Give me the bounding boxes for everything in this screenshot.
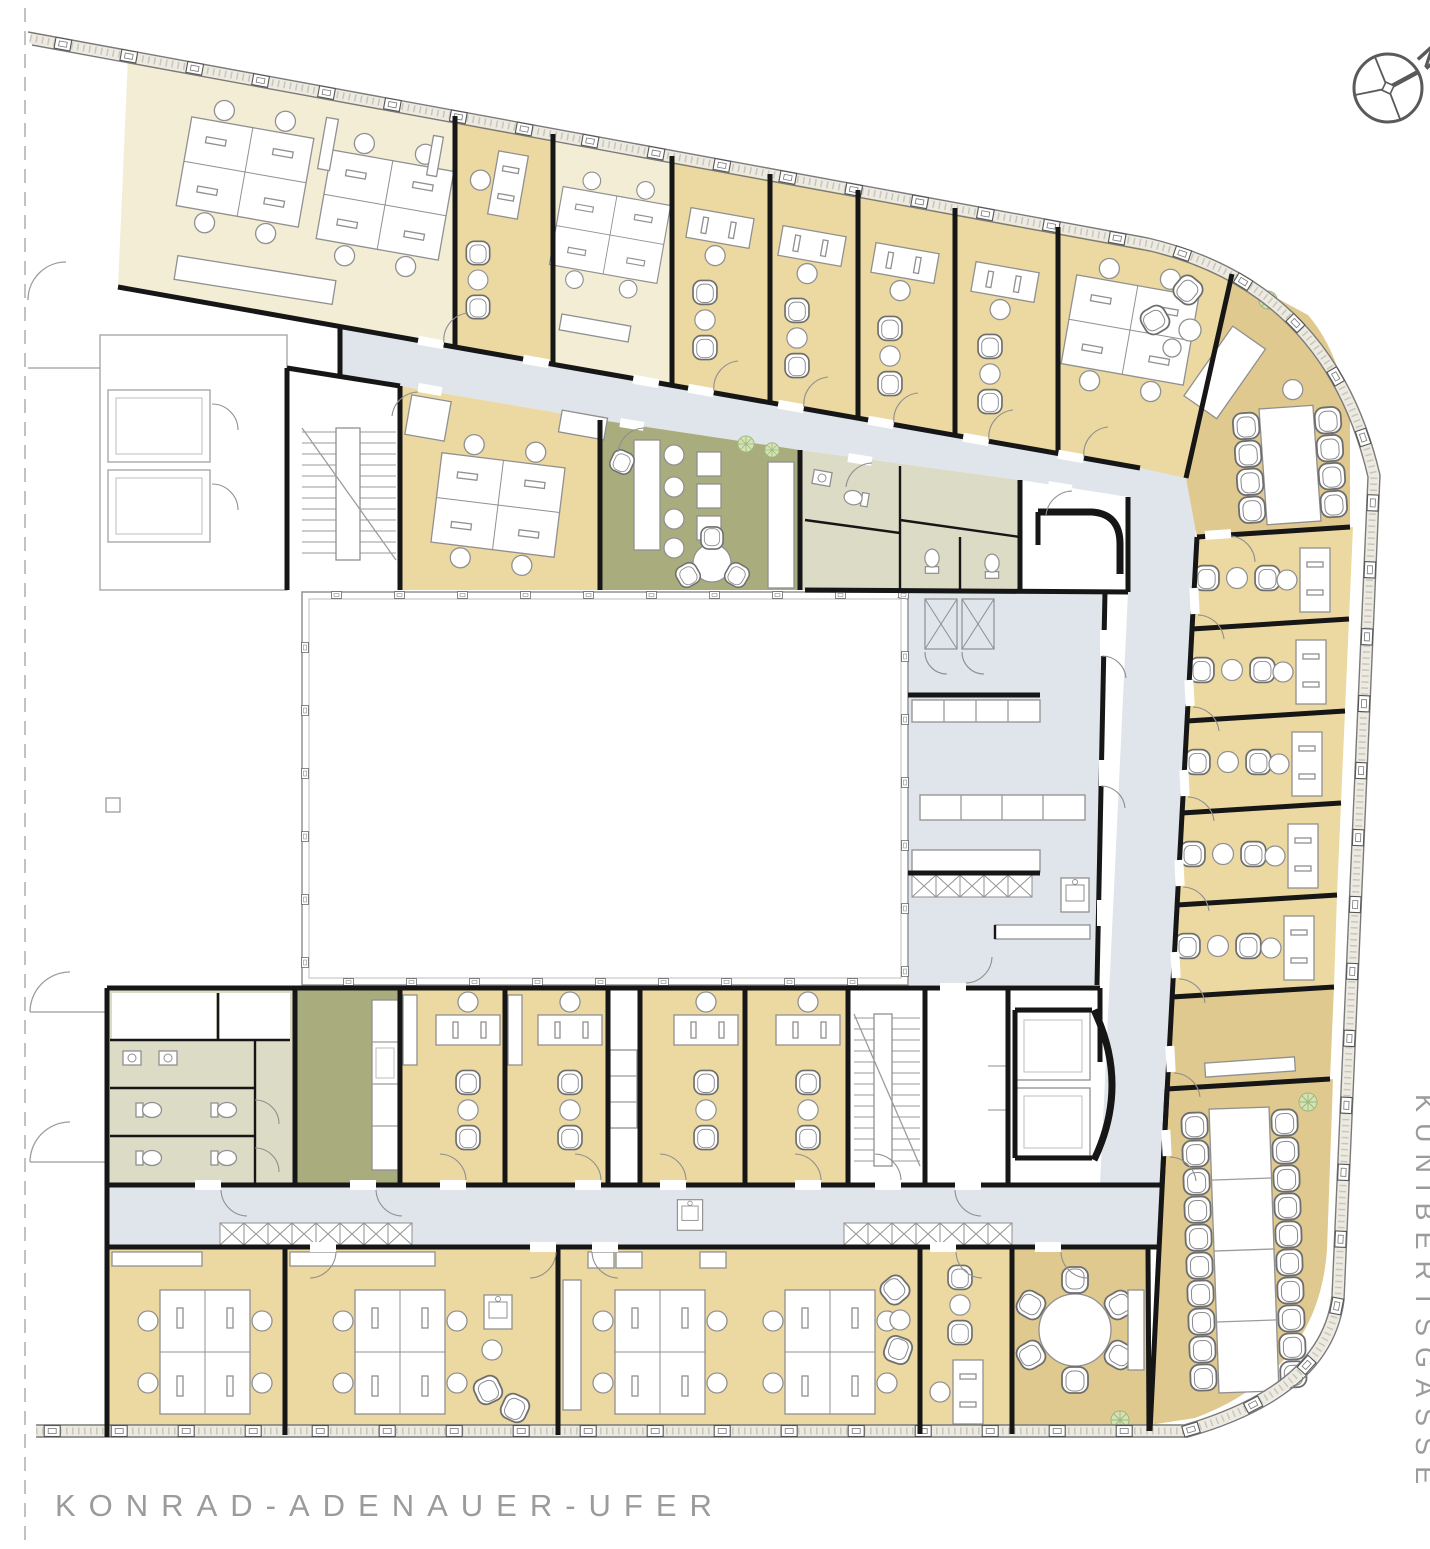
neighbor-wall xyxy=(30,972,107,1012)
facade-column xyxy=(332,592,342,599)
facade-column xyxy=(902,652,909,662)
facade-column xyxy=(302,958,309,968)
room-cell-office xyxy=(770,174,858,418)
facade-column xyxy=(186,61,204,75)
facade-column xyxy=(902,841,909,851)
facade-column xyxy=(584,592,594,599)
facade-column xyxy=(848,1426,864,1437)
facade-column xyxy=(902,904,909,914)
facade-column xyxy=(521,592,531,599)
facade-column xyxy=(1108,231,1126,245)
facade-column xyxy=(714,1426,730,1437)
facade-column xyxy=(1116,1426,1132,1437)
facade-column xyxy=(713,159,731,173)
facade-column xyxy=(596,979,606,986)
floor-plan: KONRAD-ADENAUER-UFER KUNIBERTSGASSE N xyxy=(0,0,1430,1549)
north-compass: N xyxy=(1354,41,1430,122)
facade-column xyxy=(1352,829,1364,845)
floor-plan-page: KONRAD-ADENAUER-UFER KUNIBERTSGASSE N xyxy=(0,0,1430,1549)
facade-column xyxy=(1341,1097,1353,1113)
street-label-right: KUNIBERTSGASSE xyxy=(1410,1094,1430,1495)
facade-column xyxy=(120,49,138,63)
facade-column xyxy=(781,1426,797,1437)
room-cell-office xyxy=(955,208,1058,453)
facade-column xyxy=(1346,963,1358,979)
facade-column xyxy=(710,592,720,599)
facade-column xyxy=(54,37,72,51)
facade-column xyxy=(302,643,309,653)
facade-column xyxy=(513,1426,529,1437)
facade-column xyxy=(44,1426,60,1437)
facade-column xyxy=(533,979,543,986)
street-label-bottom: KONRAD-ADENAUER-UFER xyxy=(55,1488,725,1523)
facade-column xyxy=(977,207,995,221)
room-cell-office xyxy=(858,190,955,435)
facade-column xyxy=(1364,562,1376,578)
facade-column xyxy=(1335,1231,1347,1247)
core-room xyxy=(112,993,216,1040)
facade-column xyxy=(446,1426,462,1437)
compass-needle xyxy=(1392,72,1418,86)
facade-column xyxy=(1330,1297,1344,1315)
facade-column xyxy=(1367,495,1379,511)
facade-column xyxy=(722,979,732,986)
facade-column xyxy=(302,769,309,779)
facade-column xyxy=(302,706,309,716)
neighbor-wall xyxy=(28,262,100,368)
facade-column xyxy=(848,979,858,986)
facade-column xyxy=(1344,1030,1356,1046)
facade-column xyxy=(312,1426,328,1437)
facade-column xyxy=(344,979,354,986)
facade-column xyxy=(911,195,929,209)
facade-column xyxy=(407,979,417,986)
facade-column xyxy=(302,895,309,905)
elevator-lobby xyxy=(925,988,1008,1185)
neighbor-shaft xyxy=(108,390,210,462)
archive-shelves xyxy=(912,875,1032,897)
furniture-kitchen-south xyxy=(372,1000,398,1170)
facade-column xyxy=(302,832,309,842)
furniture-conference-se xyxy=(1181,1106,1307,1394)
facade-column xyxy=(902,715,909,725)
facade-column xyxy=(1049,1426,1065,1437)
facade-column xyxy=(449,110,467,124)
facade-column xyxy=(647,1426,663,1437)
facade-column xyxy=(647,592,657,599)
facade-column xyxy=(458,592,468,599)
facade-column xyxy=(659,979,669,986)
facade-column xyxy=(384,98,402,112)
neighbor-marker xyxy=(106,798,120,812)
facade-column xyxy=(379,1426,395,1437)
facade-column xyxy=(178,1426,194,1437)
facade-column xyxy=(982,1426,998,1437)
neighbor-wall xyxy=(30,1122,107,1162)
north-label: N xyxy=(1411,41,1430,76)
facade-column xyxy=(1361,629,1373,645)
courtyard-glazing-outer xyxy=(302,592,908,985)
facade-column xyxy=(1338,1164,1350,1180)
facade-column xyxy=(581,134,599,148)
facade-column xyxy=(779,171,797,185)
room-cell-office xyxy=(672,156,770,402)
facade-column xyxy=(245,1426,261,1437)
facade-column xyxy=(1355,762,1367,778)
facade-column xyxy=(902,778,909,788)
facade-column xyxy=(111,1426,127,1437)
core-room xyxy=(220,993,290,1040)
facade-column xyxy=(1358,695,1370,711)
facade-column xyxy=(785,979,795,986)
facade-column xyxy=(902,967,909,977)
neighbor-shaft xyxy=(108,470,210,542)
facade-column xyxy=(647,146,665,160)
facade-column xyxy=(318,86,336,100)
facade-column xyxy=(252,74,270,88)
facade-column xyxy=(1355,428,1371,447)
facade-column xyxy=(580,1426,596,1437)
facade-column xyxy=(515,122,533,136)
facade-column xyxy=(1349,896,1361,912)
facade-column xyxy=(773,592,783,599)
facade-column xyxy=(470,979,480,986)
facade-column xyxy=(395,592,405,599)
courtyard xyxy=(302,592,908,985)
